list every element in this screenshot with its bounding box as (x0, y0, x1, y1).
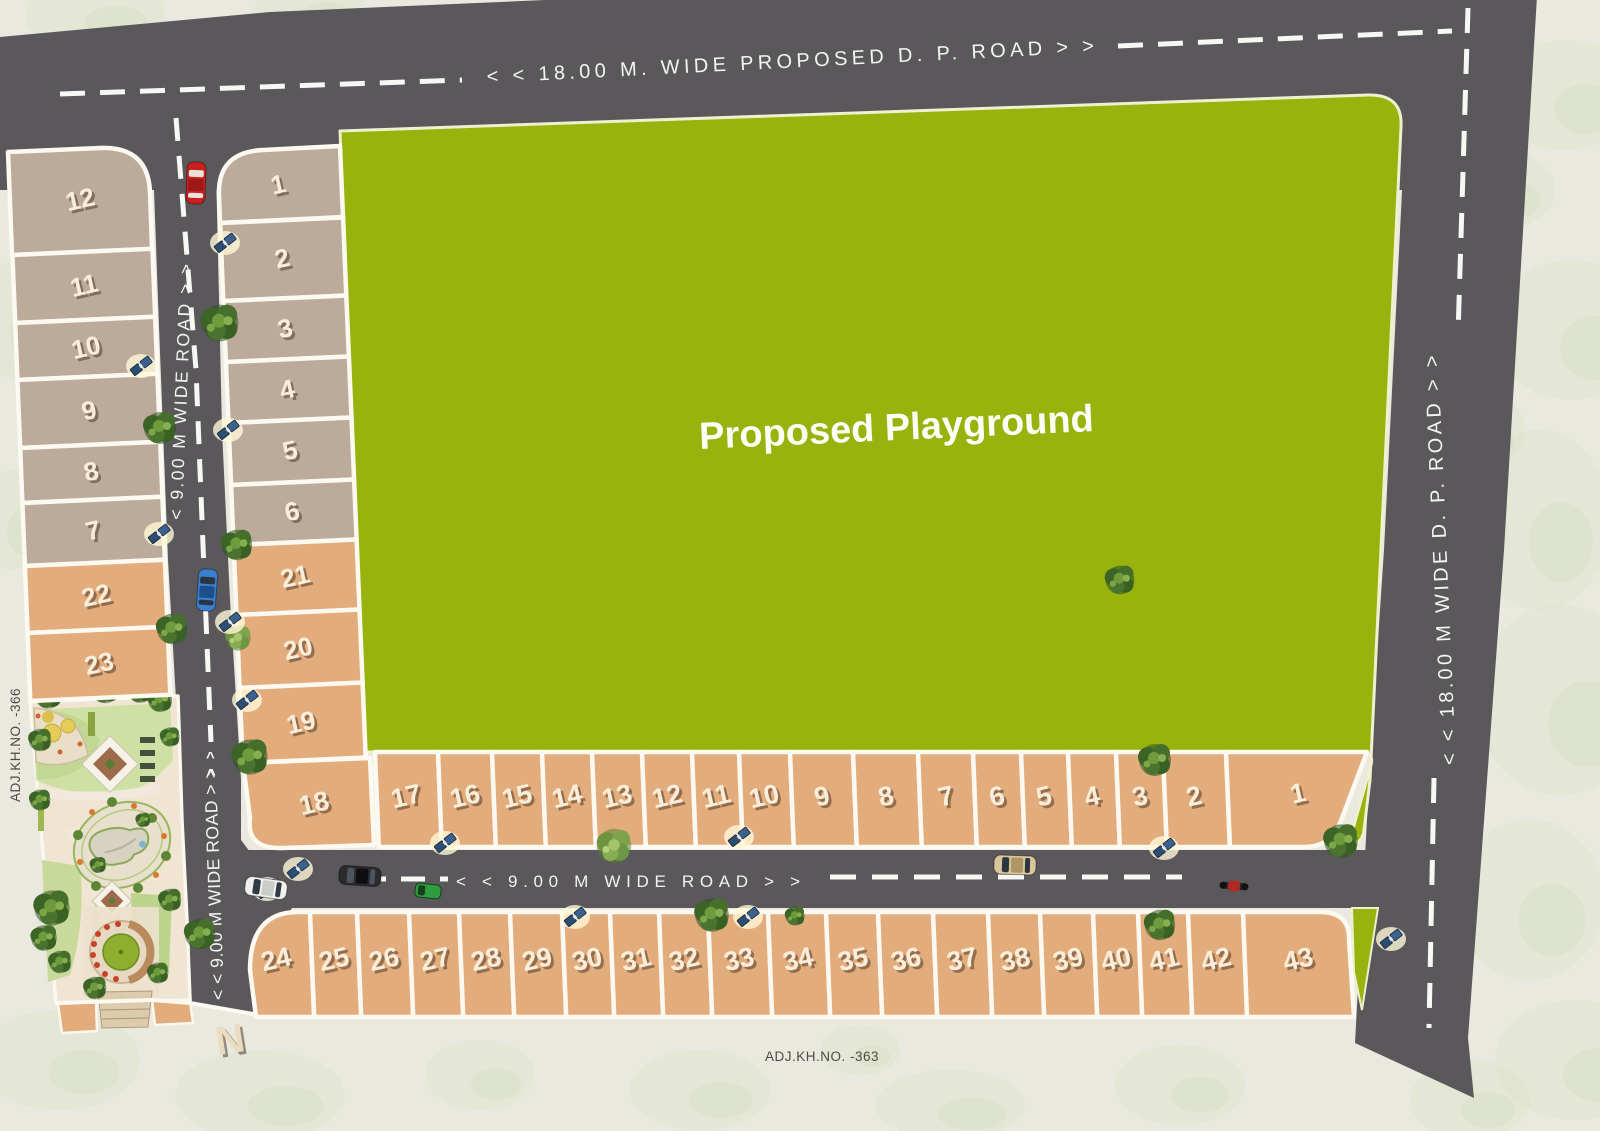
svg-text:ADJ.KH.NO. -366: ADJ.KH.NO. -366 (8, 688, 23, 802)
svg-text:ADJ.KH.NO. -363: ADJ.KH.NO. -363 (765, 1049, 879, 1064)
svg-text:^: ^ (206, 749, 215, 766)
